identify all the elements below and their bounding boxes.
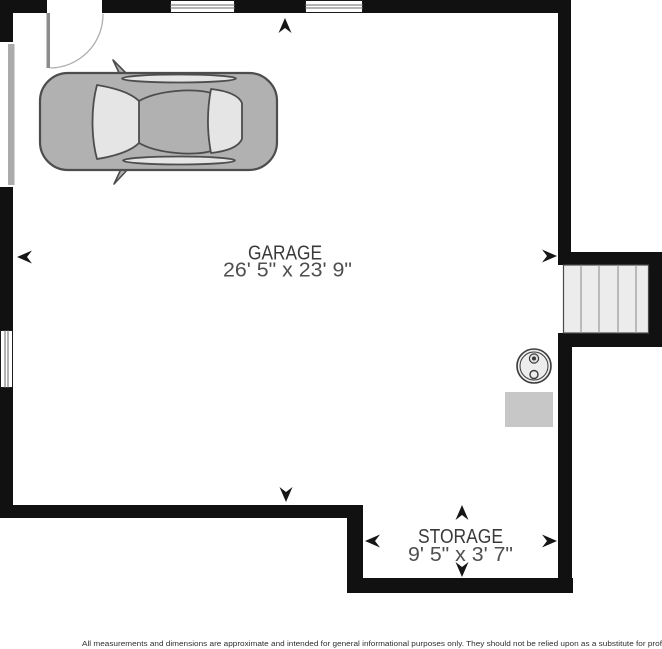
car-side-window: [122, 75, 236, 83]
wall-segment: [558, 252, 662, 265]
car-rear-window: [208, 89, 242, 153]
garage-door: [8, 44, 15, 185]
window-symbol: [171, 1, 235, 13]
wall-segment: [347, 578, 573, 593]
water-heater-icon: [517, 349, 551, 383]
window-symbol: [306, 1, 363, 13]
wall-segment: [0, 187, 13, 330]
disclaimer-text: All measurements and dimensions are appr…: [82, 641, 662, 648]
car-icon: [40, 60, 277, 184]
wall-segment: [0, 0, 13, 42]
wall-segment: [0, 505, 363, 518]
wall-segment: [0, 388, 13, 518]
car-windshield: [93, 85, 140, 159]
floor-plan: GARAGE 26' 5" x 23' 9" STORAGE 9' 5" x 3…: [0, 0, 662, 649]
garage-room-dimensions: 26' 5" x 23' 9": [223, 260, 352, 282]
staircase-icon: [564, 265, 649, 333]
wall-segment: [558, 333, 662, 347]
wall-segment: [363, 0, 571, 13]
storage-room-dimensions: 9' 5" x 3' 7": [408, 544, 513, 566]
utility-pad: [505, 392, 553, 427]
door-leaf: [47, 13, 51, 68]
wall-segment: [235, 0, 305, 13]
wall-segment: [558, 0, 571, 265]
wall-segment: [558, 333, 572, 593]
wall-segment: [648, 252, 662, 347]
wall-segment: [102, 0, 170, 13]
car-side-window: [123, 157, 235, 165]
window-symbol: [1, 331, 13, 388]
